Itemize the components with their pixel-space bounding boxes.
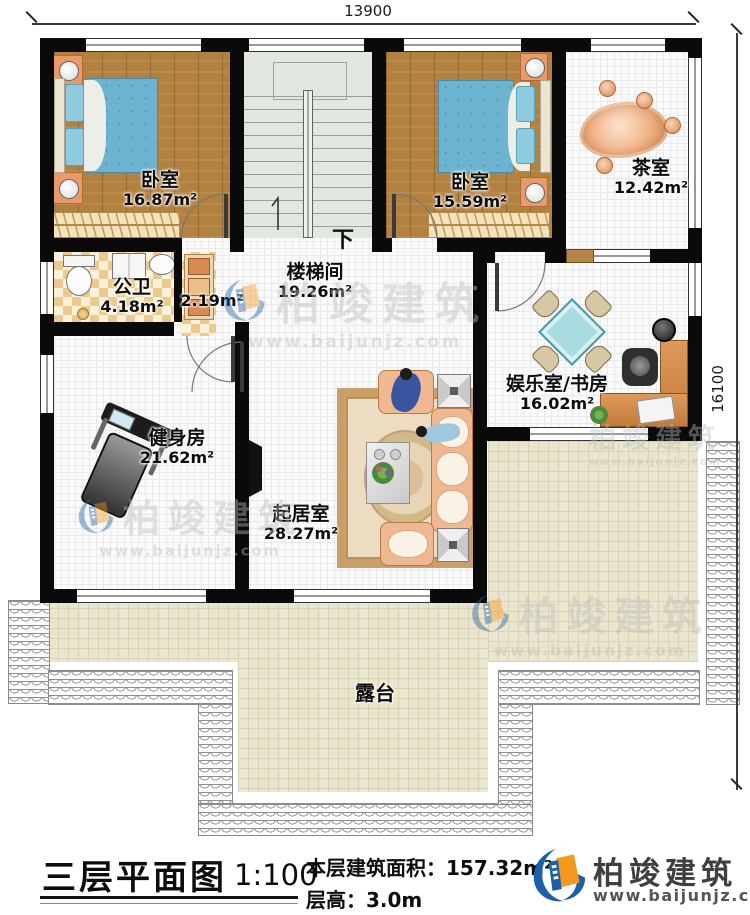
room-name: 楼梯间 <box>286 262 343 283</box>
wardrobe <box>428 212 550 238</box>
room-name: 起居室 <box>272 504 329 525</box>
window <box>86 38 201 52</box>
window <box>404 38 521 52</box>
pillow <box>65 84 84 122</box>
person-head <box>400 368 412 380</box>
jar-icon <box>652 318 676 342</box>
window <box>249 38 364 52</box>
sliding-door <box>77 589 206 603</box>
person-head <box>416 426 427 437</box>
window <box>688 58 702 228</box>
cup <box>374 449 385 460</box>
room-label-entertainment: 娱乐室/书房 16.02m² <box>490 374 624 413</box>
side-table-center <box>449 541 457 549</box>
sliding-door <box>294 589 430 603</box>
room-area: 19.26m² <box>278 283 352 301</box>
nightstand <box>520 53 548 81</box>
roof-tile-band <box>198 803 533 836</box>
bed-headboard <box>54 78 65 173</box>
floor-height-label: 层高： <box>306 888 366 912</box>
side-table <box>437 528 469 562</box>
nightstand <box>53 172 83 204</box>
wall <box>40 322 174 336</box>
room-label-gym: 健身房 21.62m² <box>122 428 232 467</box>
room-area: 2.19m² <box>180 292 243 310</box>
room-name: 健身房 <box>148 428 205 449</box>
sofa-cushion <box>436 490 469 524</box>
room-name: 公卫 <box>113 277 151 298</box>
bed-sheet <box>84 80 106 171</box>
lamp-icon <box>525 58 545 78</box>
storage-box <box>188 258 210 275</box>
flower <box>385 470 391 476</box>
wall <box>688 38 702 58</box>
terrace-floor <box>48 598 238 662</box>
wall <box>648 427 702 441</box>
roof-tile-band <box>498 703 533 805</box>
wall <box>483 427 530 441</box>
room-name: 茶室 <box>632 158 670 179</box>
floor-area-row: 本层建筑面积：157.32m² <box>306 852 553 881</box>
dimension-line-right <box>736 33 738 790</box>
room-name: 卧室 <box>141 170 179 191</box>
stool <box>599 80 616 97</box>
wall <box>230 38 244 252</box>
pillow <box>516 128 535 164</box>
stair-handrail <box>303 90 313 238</box>
dimension-tick <box>25 11 37 23</box>
office-chair <box>622 348 658 386</box>
flower <box>376 466 382 472</box>
stairs-direction-label: 下 <box>332 222 354 254</box>
brand-logo-icon: .swoosh{fill:#1d5fa8}.bldg{fill:#f5991e} <box>531 845 587 905</box>
lamp-icon <box>59 179 79 199</box>
room-area: 28.27m² <box>264 525 338 543</box>
room-label-tea-room: 茶室 12.42m² <box>596 158 706 197</box>
room-label-closet: 2.19m² <box>178 292 246 310</box>
wall <box>483 249 495 263</box>
side-table <box>437 374 471 408</box>
wall <box>40 238 182 252</box>
wall <box>40 589 77 603</box>
wall <box>206 589 294 603</box>
wall <box>235 322 249 603</box>
sofa-cushion <box>388 530 428 558</box>
dimension-height-label: 16100 <box>709 365 727 413</box>
window <box>594 249 650 263</box>
floor-plan: 卧室 16.87m² 卧室 15.59m² 茶室 12.42m² 公卫 4.18… <box>0 0 750 915</box>
nightstand <box>520 177 548 207</box>
wall <box>552 38 566 263</box>
floor-height-row: 层高：3.0m <box>306 884 422 913</box>
tv-icon <box>249 440 262 497</box>
room-label-bedroom-right: 卧室 15.59m² <box>418 172 522 211</box>
room-name: 卧室 <box>451 172 489 193</box>
title-underline-2 <box>40 903 298 904</box>
wall <box>372 38 386 252</box>
door-sill <box>566 249 594 263</box>
roof-tile-band <box>8 600 50 704</box>
room-label-bedroom-left: 卧室 16.87m² <box>108 170 212 209</box>
dimension-line-top <box>32 23 696 25</box>
office-chair-pad <box>630 356 650 376</box>
pillow <box>65 128 84 166</box>
plan-title: 三层平面图 <box>42 850 227 899</box>
stool <box>664 117 681 134</box>
terrace-floor <box>488 441 698 662</box>
room-label-terrace: 露台 <box>340 682 410 704</box>
room-name: 露台 <box>355 682 395 704</box>
lamp-icon <box>525 183 545 203</box>
room-area: 4.18m² <box>100 298 163 316</box>
room-area: 21.62m² <box>140 449 214 467</box>
window <box>591 38 665 52</box>
window <box>530 427 648 441</box>
wall <box>40 38 54 262</box>
title-underline <box>40 896 298 899</box>
printer-icon <box>637 396 676 425</box>
room-area: 15.59m² <box>433 193 507 211</box>
wall <box>430 589 483 603</box>
sofa-cushion <box>436 452 469 486</box>
storage-shelf <box>184 254 214 320</box>
dimension-width-label: 13900 <box>330 2 406 20</box>
window <box>40 355 54 413</box>
room-name: 娱乐室/书房 <box>506 374 608 395</box>
roof-tile-band <box>198 703 233 805</box>
dimension-tick <box>687 11 699 23</box>
roof-tile-band <box>706 441 740 705</box>
window <box>688 258 702 316</box>
stool <box>636 92 653 109</box>
room-label-stair-hall: 楼梯间 19.26m² <box>260 262 370 301</box>
room-area: 16.87m² <box>123 191 197 209</box>
wall <box>688 316 702 441</box>
brand-website: www.baijunjz.com <box>593 886 750 905</box>
wall <box>40 413 54 603</box>
wall <box>473 249 487 603</box>
wardrobe <box>52 212 180 238</box>
cup <box>390 449 401 460</box>
bed <box>438 80 514 173</box>
sink <box>149 254 175 275</box>
wall <box>650 249 702 263</box>
wall <box>545 249 566 263</box>
wall <box>386 238 392 252</box>
roof-tile-band <box>48 670 233 705</box>
roof-tile-band <box>498 670 700 705</box>
floor-area-label: 本层建筑面积： <box>306 856 446 880</box>
pillow <box>516 86 535 122</box>
floor-height-value: 3.0m <box>366 888 422 912</box>
room-area: 12.42m² <box>614 179 688 197</box>
room-label-bathroom: 公卫 4.18m² <box>82 277 182 316</box>
room-area: 16.02m² <box>520 395 594 413</box>
bed-headboard <box>540 80 551 173</box>
window <box>40 262 54 314</box>
room-label-living: 起居室 28.27m² <box>246 504 356 543</box>
side-table-center <box>450 387 458 395</box>
